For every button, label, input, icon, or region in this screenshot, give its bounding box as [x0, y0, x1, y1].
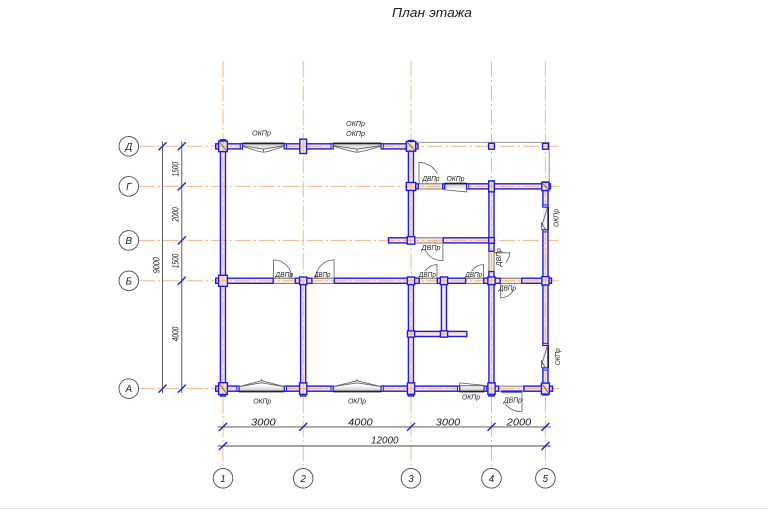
svg-text:ДВПр: ДВПр	[422, 176, 440, 183]
svg-text:ОКПр: ОКПр	[348, 398, 366, 405]
svg-text:2000: 2000	[170, 207, 180, 222]
svg-text:4: 4	[489, 474, 495, 485]
svg-text:3000: 3000	[251, 418, 276, 429]
svg-text:ДВПр: ДВПр	[464, 272, 482, 279]
svg-text:ОКПр: ОКПр	[447, 176, 465, 183]
svg-text:ДВПр: ДВПр	[498, 285, 516, 292]
svg-text:2: 2	[299, 474, 306, 485]
svg-text:1500: 1500	[170, 254, 180, 269]
svg-text:ОКПр: ОКПр	[252, 130, 271, 137]
svg-text:12000: 12000	[371, 436, 399, 447]
svg-text:1500: 1500	[170, 162, 180, 177]
svg-text:План этажа: План этажа	[392, 6, 472, 20]
svg-text:ОКПр: ОКПр	[555, 348, 562, 365]
svg-text:ДВПр: ДВПр	[420, 245, 440, 252]
svg-text:ОКПр: ОКПр	[253, 398, 271, 405]
svg-text:Б: Б	[126, 276, 133, 287]
svg-text:Д: Д	[124, 142, 132, 153]
svg-text:5: 5	[543, 474, 549, 485]
svg-text:ОКПр: ОКПр	[462, 394, 480, 401]
svg-text:ОКПр: ОКПр	[346, 121, 365, 128]
svg-text:ОКПр: ОКПр	[553, 209, 560, 227]
svg-text:ДВПр: ДВПр	[314, 272, 331, 279]
svg-text:3: 3	[408, 474, 414, 485]
svg-text:ДВПр: ДВПр	[503, 398, 522, 405]
svg-text:В: В	[126, 236, 133, 247]
svg-text:ДВПр: ДВПр	[418, 272, 436, 279]
svg-text:9000: 9000	[151, 257, 161, 273]
svg-text:4000: 4000	[170, 327, 180, 342]
svg-text:1: 1	[220, 474, 225, 485]
svg-text:2000: 2000	[506, 418, 532, 429]
svg-text:3000: 3000	[436, 418, 461, 429]
svg-text:ДВПр: ДВПр	[496, 248, 503, 267]
svg-text:ОКПр: ОКПр	[346, 131, 365, 138]
svg-text:4000: 4000	[348, 418, 373, 429]
svg-text:Г: Г	[126, 182, 132, 193]
svg-text:А: А	[125, 384, 133, 395]
svg-text:ДВПр: ДВПр	[274, 272, 293, 279]
